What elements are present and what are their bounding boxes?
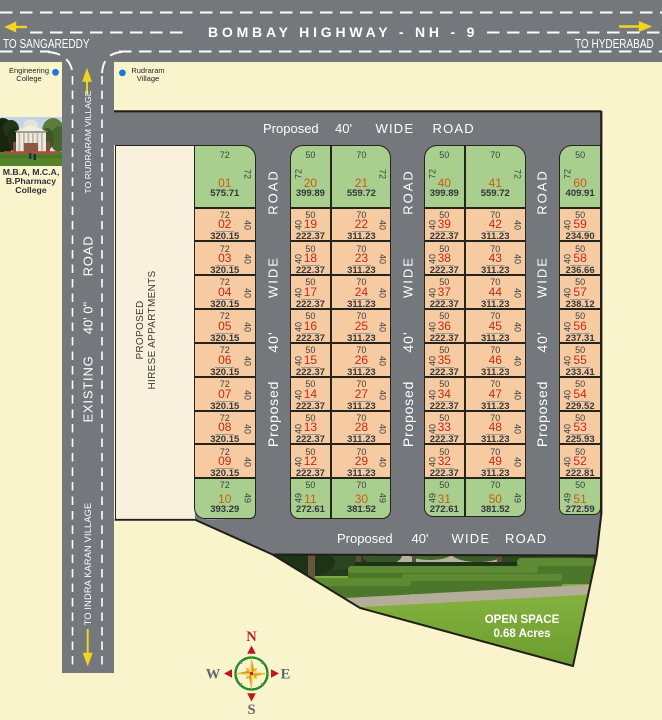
svg-text:N: N (246, 629, 257, 645)
svg-text:E: E (281, 667, 291, 683)
svg-text:W: W (206, 667, 221, 683)
svg-text:S: S (247, 702, 255, 718)
